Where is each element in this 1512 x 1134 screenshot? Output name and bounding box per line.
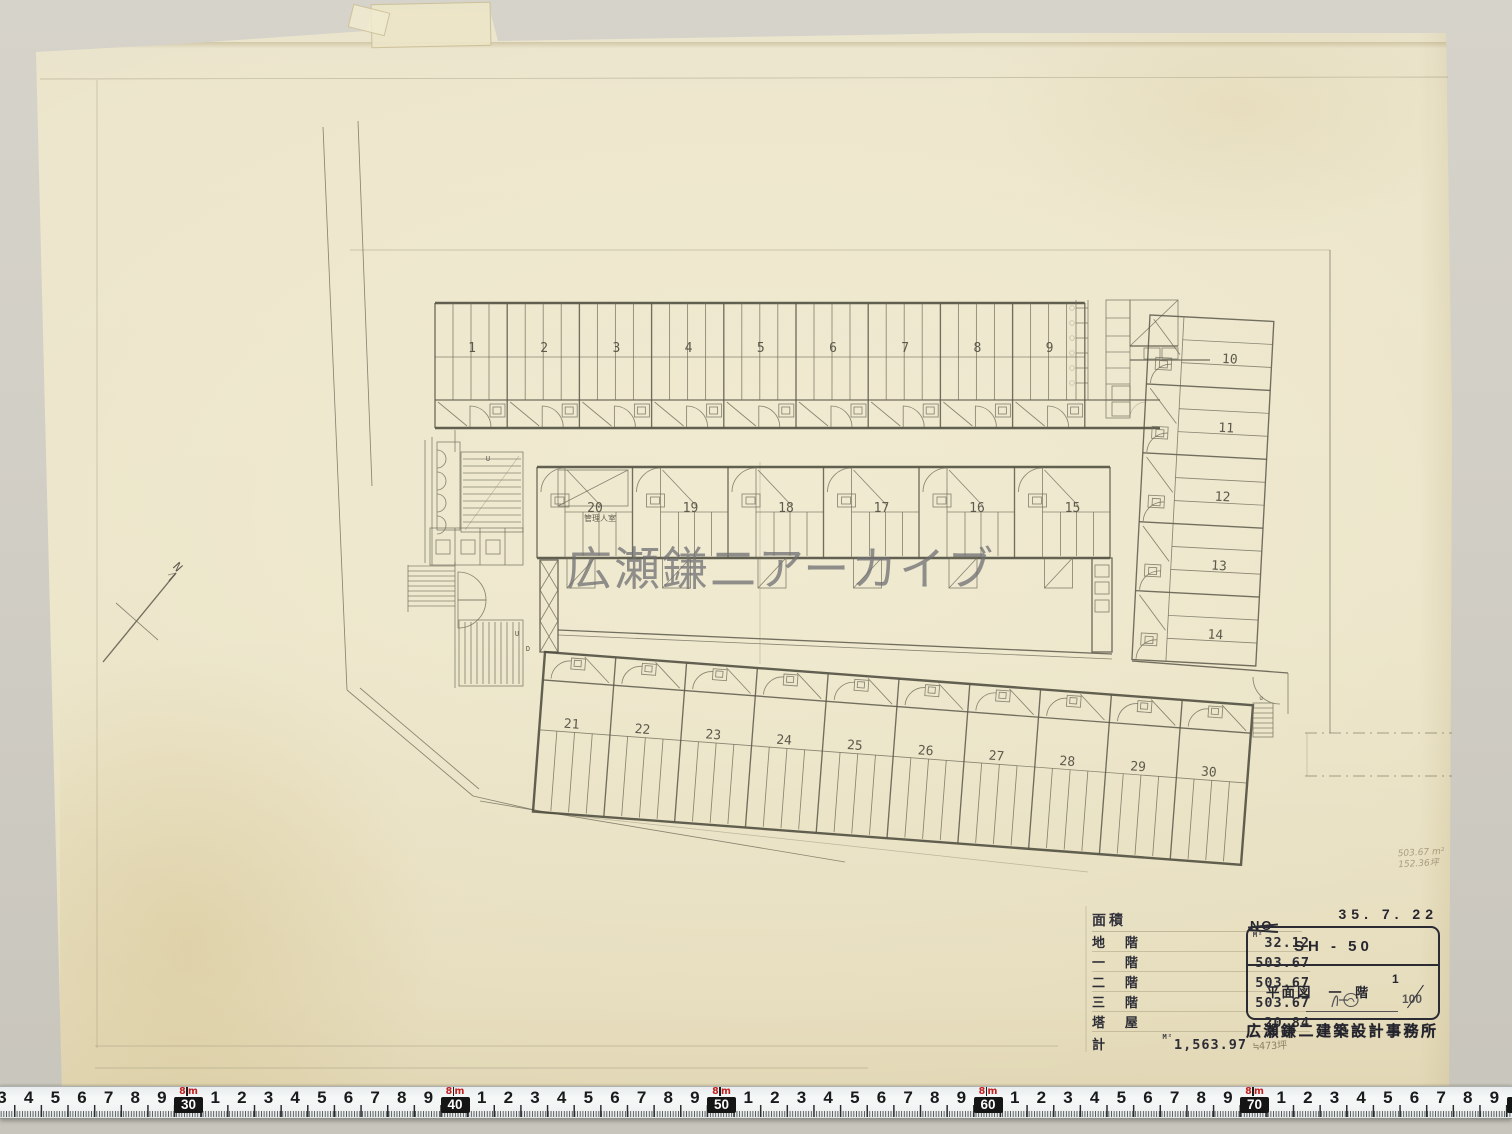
area-total-value: M²1,563.97 [1132, 1037, 1247, 1053]
pencil-line [1145, 457, 1175, 492]
pencil-line [1016, 402, 1045, 426]
bottom-wing: 21222324252627282930 [533, 652, 1253, 865]
pencil-line [1188, 779, 1194, 859]
pencil-rect [842, 497, 851, 504]
pencil-line [1008, 689, 1036, 715]
pencil-line [1117, 774, 1123, 854]
ruler-cm-digit: 3 [1322, 1088, 1348, 1108]
pencil-rect [490, 404, 505, 417]
pencil-rect [999, 692, 1006, 699]
pencil-line [1141, 526, 1171, 561]
pencil-line [943, 402, 972, 426]
room-number: 25 [846, 738, 863, 754]
room-number: 13 [1211, 559, 1227, 575]
pencil-line [654, 662, 682, 688]
ruler-cm-digit: 6 [1401, 1088, 1427, 1108]
ruler-cm-digit: 8 [122, 1088, 148, 1108]
pencil-rect [925, 685, 940, 697]
pencil-dot [1070, 321, 1075, 326]
pencil-line [1172, 546, 1262, 551]
ruler-cm-digit: 6 [602, 1088, 628, 1108]
pencil-path [541, 468, 565, 492]
pencil-line [1130, 300, 1178, 346]
pencil-line [905, 758, 911, 838]
pencil-line [586, 734, 592, 814]
pencil-path [1136, 639, 1157, 660]
ruler-cm-digit: 2 [495, 1088, 521, 1108]
pencil-line [360, 688, 479, 789]
pencil-rect [937, 497, 946, 504]
room-number: 23 [705, 727, 722, 743]
pencil-path [437, 494, 446, 512]
stair-up-label: U [486, 455, 490, 463]
pencil-rect [1140, 703, 1147, 710]
ruler-cm-digit: 3 [256, 1088, 282, 1108]
pencil-rect [642, 663, 657, 675]
right-wing: 1011121314 [1132, 315, 1274, 666]
pencil-path [1117, 702, 1137, 722]
pencil-path [1253, 677, 1280, 704]
pencil-line [1135, 775, 1141, 855]
ruler-cm-digit: 3 [0, 1088, 15, 1108]
ruler-cm-digit: 2 [1028, 1088, 1054, 1108]
pencil-line [639, 738, 645, 818]
pencil-line [1011, 766, 1017, 846]
pencil-rect [742, 494, 760, 507]
ruler-cm-digit: 7 [1428, 1088, 1454, 1108]
pencil-path [732, 468, 756, 492]
pencil-rect [854, 679, 869, 691]
room-number: 28 [1059, 754, 1076, 770]
pencil-path [1150, 363, 1171, 384]
pencil-line [438, 402, 467, 426]
room-number: 9 [1046, 341, 1054, 356]
pencil-line [551, 731, 557, 811]
pencil-dot [1070, 381, 1075, 386]
pencil-line [1153, 776, 1159, 856]
room-number: 2 [540, 341, 548, 356]
ruler-cm-digit: 8 [389, 1088, 415, 1108]
pencil-rect [998, 407, 1006, 414]
room-number: 7 [901, 341, 909, 356]
ruler-decimeter-box: 8m50 [704, 1087, 740, 1113]
pencil-line [710, 743, 716, 823]
ruler-cm-digit: 7 [362, 1088, 388, 1108]
pencil-rect [436, 540, 450, 554]
ruler-cm-digit: 1 [735, 1088, 761, 1108]
pencil-line [1139, 522, 1263, 528]
pencil-line [1132, 661, 1288, 673]
ruler-cm-digit: 2 [1295, 1088, 1321, 1108]
archive-watermark: 広瀬鎌二アーカイブ [566, 533, 995, 599]
drawing-date: 35. 7. 22 [1339, 906, 1439, 922]
ruler-cm-digit: 5 [1375, 1088, 1401, 1108]
ruler-cm-digit: 3 [1055, 1088, 1081, 1108]
pencil-line [940, 760, 946, 840]
pencil-path [1143, 501, 1164, 522]
room-number: 5 [757, 341, 765, 356]
room-number: 11 [1218, 421, 1234, 437]
room-number: 4 [685, 341, 693, 356]
ruler-decimeter-box: 8m60 [970, 1087, 1006, 1113]
pencil-line [1136, 591, 1260, 597]
pencil-line [558, 630, 1112, 654]
pencil-rect [1095, 565, 1109, 577]
pencil-line [510, 402, 539, 426]
handwritten-pencil-note: 503.67 m² 152.36坪 [1397, 847, 1445, 871]
pencil-line [869, 755, 875, 835]
pencil-path [1140, 570, 1161, 591]
pencil-rect [779, 404, 794, 417]
pencil-line [1206, 780, 1212, 860]
ruler-cm-digit: 5 [309, 1088, 335, 1108]
pencil-rect [995, 404, 1010, 417]
room-number: 10 [1222, 352, 1238, 368]
ruler-cm-digit: 5 [575, 1088, 601, 1108]
pencil-rect [571, 658, 586, 670]
ruler-cm-digit: 3 [522, 1088, 548, 1108]
pencil-path [458, 600, 486, 628]
pencil-dot [1070, 306, 1075, 311]
pencil-rect [707, 404, 722, 417]
pencil-path [693, 670, 713, 690]
room-number: 18 [778, 501, 794, 516]
pencil-path [975, 406, 996, 427]
pencil-line [976, 763, 982, 843]
ruler-cm-digit: 5 [42, 1088, 68, 1108]
pencil-line [725, 668, 753, 694]
ruler-cm-digit: 7 [895, 1088, 921, 1108]
pencil-line [692, 742, 698, 822]
room-number: 6 [829, 341, 837, 356]
ruler-cm-digit: 4 [549, 1088, 575, 1108]
pencil-line [1220, 705, 1248, 731]
pencil-path [759, 406, 780, 427]
pencil-rect [1033, 497, 1042, 504]
pencil-path [542, 406, 563, 427]
pencil-rect [486, 540, 500, 554]
ruler-cm-digit: 4 [16, 1088, 42, 1108]
pencil-path [1048, 406, 1069, 427]
drawing-code: SH - 50 [1294, 938, 1373, 955]
ruler-cm-digit: 8 [922, 1088, 948, 1108]
pencil-line [40, 77, 1448, 79]
pencil-rect [645, 666, 652, 673]
pencil-line [1170, 523, 1174, 592]
ruler-cm-digit: 4 [1348, 1088, 1374, 1108]
pencil-path [687, 406, 708, 427]
pencil-line [116, 603, 158, 640]
pencil-line [871, 402, 900, 426]
room-number: 30 [1200, 765, 1217, 781]
pencil-line [887, 679, 899, 839]
pencil-rect [1071, 407, 1079, 414]
pencil-dot [1070, 351, 1075, 356]
pencil-line [799, 402, 828, 426]
pencil-line [347, 690, 473, 796]
pencil-line [993, 764, 999, 844]
pencil-rect [1208, 706, 1223, 718]
ruler-cm-digit: 4 [282, 1088, 308, 1108]
pencil-rect [782, 407, 790, 414]
pencil-line [604, 657, 616, 817]
pencil-line [795, 673, 823, 699]
pencil-line [923, 759, 929, 839]
ruler-cm-digit: 8 [655, 1088, 681, 1108]
ruler-decimeter-box: 8m40 [437, 1087, 473, 1113]
pencil-line [358, 121, 372, 486]
pencil-path [1188, 707, 1208, 727]
pencil-rect [1095, 582, 1109, 594]
pencil-line [558, 635, 1112, 659]
pencil-path [1047, 697, 1067, 717]
pencil-line [1180, 317, 1184, 386]
pencil-rect [562, 404, 577, 417]
pencil-line [1176, 478, 1266, 483]
pencil-path [622, 665, 642, 685]
ruler-decimeter-box: 8m30 [171, 1087, 207, 1113]
area-row-label: 二 階 [1092, 972, 1154, 991]
pencil-path [465, 456, 519, 530]
pencil-path [637, 468, 661, 492]
pencil-rect [854, 407, 862, 414]
pencil-line [323, 127, 347, 690]
ruler-cm-digit: 1 [469, 1088, 495, 1108]
pencil-rect [933, 494, 951, 507]
pencil-line [583, 657, 611, 683]
pencil-rect [1112, 386, 1130, 400]
ruler-cm-digit: 2 [762, 1088, 788, 1108]
room-number: 24 [776, 733, 793, 749]
pencil-rect [493, 407, 501, 414]
ruler-cm-digit: 6 [868, 1088, 894, 1108]
room-number: 26 [917, 743, 934, 759]
pencil-dot [1070, 336, 1075, 341]
ruler-cm-digit: 4 [1082, 1088, 1108, 1108]
area-total-label: 計 [1092, 1034, 1132, 1053]
pencil-rect [783, 674, 798, 686]
pencil-line [1223, 782, 1229, 862]
pencil-rect [430, 528, 523, 565]
pencil-line [548, 813, 1088, 872]
pencil-rect [716, 671, 723, 678]
pencil-line [569, 732, 575, 812]
pencil-line [1152, 319, 1182, 354]
pencil-line [1148, 388, 1178, 423]
pencil-rect [926, 407, 934, 414]
pencil-rect [851, 404, 866, 417]
pencil-line [103, 573, 176, 662]
pencil-rect [838, 494, 856, 507]
pencil-line [1146, 384, 1270, 390]
room-number: 22 [634, 722, 651, 738]
pencil-line [1149, 700, 1177, 726]
room-number: 17 [874, 501, 890, 516]
pencil-dot [1070, 366, 1075, 371]
ruler-cm-digit: 7 [1162, 1088, 1188, 1108]
ruler-cm-digit: 1 [1268, 1088, 1294, 1108]
pencil-rect [1137, 701, 1152, 713]
drawing-type-label: 平面図 [1266, 981, 1313, 1001]
pencil-line [1138, 595, 1168, 630]
pencil-line [655, 402, 684, 426]
room-number: 29 [1130, 759, 1147, 775]
scanned-drawing-sheet: 101112131421222324252627282930 123456789… [0, 0, 1512, 1134]
pencil-path [831, 406, 852, 427]
pencil-rect [574, 660, 581, 667]
pencil-line [1045, 558, 1073, 588]
area-row-label: 一 階 [1092, 952, 1154, 971]
pencil-line [728, 744, 734, 824]
pencil-rect [1211, 708, 1218, 715]
area-row-label: 三 階 [1092, 992, 1154, 1011]
pencil-rect [996, 690, 1011, 702]
ruler-cm-digit: 1 [202, 1088, 228, 1108]
pencil-line [1168, 615, 1258, 620]
pencil-rect [565, 407, 573, 414]
pencil-line [745, 668, 757, 828]
pencil-line [816, 673, 828, 833]
pencil-line [727, 402, 756, 426]
area-row-label: 塔 屋 [1092, 1012, 1154, 1031]
pencil-rect [710, 407, 718, 414]
pencil-path [1019, 468, 1043, 492]
pencil-path [923, 468, 947, 492]
pencil-path [903, 406, 924, 427]
room-number: 12 [1214, 490, 1230, 506]
pencil-rect [1029, 494, 1047, 507]
ruler-cm-digit: 8 [1188, 1088, 1214, 1108]
pencil-path [976, 692, 996, 712]
ruler-cm-digit: 2 [229, 1088, 255, 1108]
room-number: 19 [683, 501, 699, 516]
pencil-line [1166, 592, 1170, 661]
pencil-line [852, 754, 858, 834]
ruler-cm-digit: 8 [1455, 1088, 1481, 1108]
ruler-cm-digit: 4 [815, 1088, 841, 1108]
room-number: 14 [1207, 627, 1224, 643]
pencil-line [799, 750, 805, 830]
pencil-rect [1068, 404, 1083, 417]
pencil-rect [712, 669, 727, 681]
pencil-line [1064, 770, 1070, 850]
pencil-path [437, 450, 446, 468]
ruler-decimeter-box: 8m80 [1503, 1087, 1512, 1113]
pencil-path [470, 406, 491, 427]
pencil-rect [857, 682, 864, 689]
pencil-rect [923, 404, 938, 417]
ruler-cm-digit: 3 [789, 1088, 815, 1108]
architect-office-stamp: 広瀬鎌二建築設計事務所 [1246, 1020, 1444, 1041]
ruler-decimeter-box: 8m70 [1237, 1087, 1273, 1113]
pencil-line [834, 752, 840, 832]
pencil-rect [634, 404, 649, 417]
pencil-rect [555, 497, 564, 504]
pencil-rect [928, 687, 935, 694]
room-number: 1 [468, 341, 476, 356]
room-number: 16 [969, 501, 985, 516]
pencil-line [1082, 771, 1088, 851]
pencil-rect [1112, 402, 1130, 416]
pencil-rect [1070, 697, 1077, 704]
room-number: 15 [1065, 501, 1081, 516]
pencil-line [1046, 768, 1052, 848]
pencil-line [675, 663, 687, 823]
ruler-cm-digit: 7 [629, 1088, 655, 1108]
ruler-cm-digit: 1 [1002, 1088, 1028, 1108]
pencil-line [582, 402, 611, 426]
pencil-line [622, 736, 628, 816]
pencil-rect [786, 676, 793, 683]
room-number: 8 [973, 341, 981, 356]
pencil-rect [1066, 695, 1081, 707]
stair-up-label: u [1259, 695, 1263, 702]
pencil-line [1173, 455, 1177, 524]
pencil-line [958, 684, 970, 844]
pencil-line [1179, 409, 1269, 414]
stair-up-label: U [515, 630, 519, 638]
pencil-path [828, 468, 852, 492]
pencil-rect [1162, 348, 1178, 359]
title-block-frame: SH - 50 平面図 一 階 1 100 [1246, 926, 1440, 1020]
ruler-cm-digit: 6 [69, 1088, 95, 1108]
measuring-tape-ruler: 34567898m301234567898m401234567898m50123… [0, 1086, 1512, 1119]
pencil-path [458, 572, 486, 600]
pencil-path [1147, 432, 1168, 453]
ruler-cm-digit: 6 [1135, 1088, 1161, 1108]
pencil-path [551, 660, 571, 680]
scale-fraction: 1 100 [1388, 972, 1422, 1006]
pencil-path [834, 681, 854, 701]
pencil-line [1170, 700, 1182, 860]
stair-down-label: D [526, 645, 530, 653]
pencil-rect [1095, 600, 1109, 612]
pencil-line [657, 739, 663, 819]
pencil-line [1079, 694, 1107, 720]
pencil-path [437, 472, 446, 490]
pencil-path [614, 406, 635, 427]
room-number: 27 [988, 749, 1005, 765]
pencil-line [1143, 453, 1267, 459]
pencil-path [763, 676, 783, 696]
pencil-line [1099, 695, 1111, 855]
pencil-line [763, 747, 769, 827]
pencil-rect [746, 497, 755, 504]
pencil-rect [461, 452, 523, 532]
ruler-cm-digit: 7 [96, 1088, 122, 1108]
pencil-line [866, 678, 894, 704]
pencil-line [937, 684, 965, 710]
pencil-rect [651, 497, 660, 504]
ruler-cm-digit: 6 [335, 1088, 361, 1108]
pencil-line [1177, 386, 1181, 455]
pencil-rect [461, 540, 475, 554]
pencil-line [1029, 689, 1041, 849]
pencil-line [1183, 340, 1273, 345]
area-row-label: 地 階 [1092, 932, 1154, 951]
ruler-cm-digit: 5 [842, 1088, 868, 1108]
room-number: 3 [612, 341, 620, 356]
pencil-rect [637, 407, 645, 414]
pencil-rect [647, 494, 665, 507]
pencil-path [905, 686, 925, 706]
ruler-cm-digit: 5 [1108, 1088, 1134, 1108]
handwritten-monogram [1326, 989, 1362, 1011]
pencil-path [1130, 402, 1146, 418]
room-number: 21 [563, 717, 580, 733]
pencil-line [781, 748, 787, 828]
caretaker-room-label: 管理人室 [584, 513, 616, 523]
